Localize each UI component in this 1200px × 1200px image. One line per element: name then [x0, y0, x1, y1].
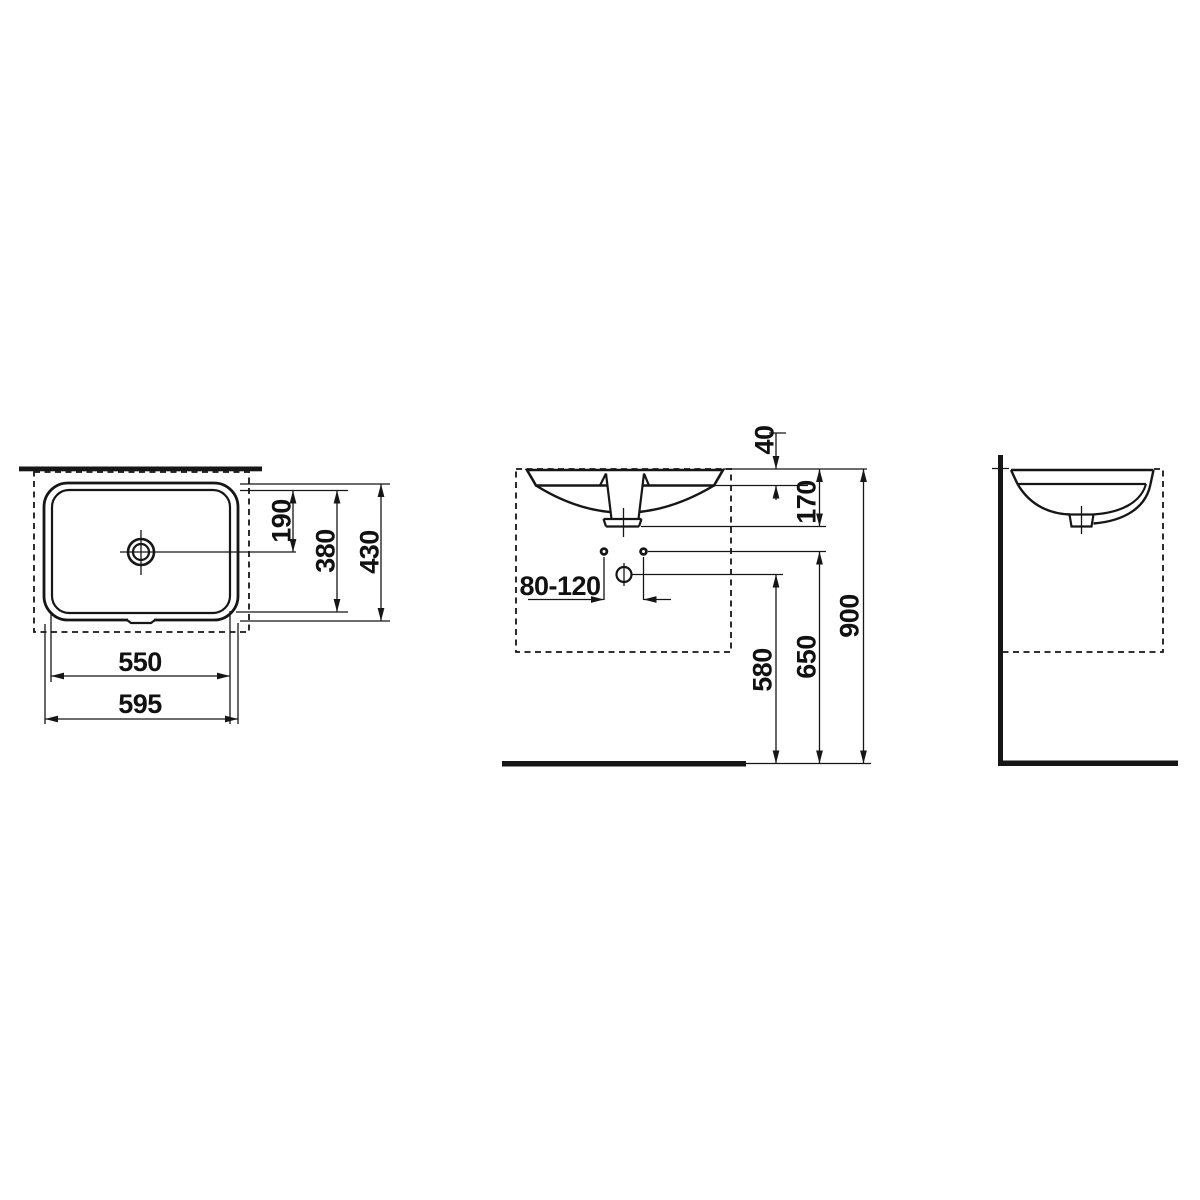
front-tap-hole-right [639, 547, 648, 556]
front-dim-650: 650 [792, 552, 822, 764]
plan-dim-595: 595 [45, 689, 238, 719]
technical-drawing: 190 380 430 550 595 [0, 0, 1200, 1200]
front-dim-40: 40 [750, 425, 780, 500]
plan-dim-430-label: 430 [355, 530, 385, 574]
plan-dim-550-label: 550 [118, 647, 162, 677]
plan-dim-380-label: 380 [311, 529, 341, 573]
front-dim-80-120-label: 80-120 [519, 571, 600, 601]
front-dim-580-label: 580 [748, 648, 778, 692]
front-dim-170: 170 [792, 469, 822, 527]
front-dim-900: 900 [835, 469, 865, 764]
front-dim-650-label: 650 [792, 635, 822, 679]
front-dim-80-120: 80-120 [519, 571, 671, 601]
front-waste-outlet [617, 563, 632, 586]
side-wall-line [998, 455, 1003, 766]
plan-dim-430: 430 [355, 484, 385, 621]
drawing-canvas: 190 380 430 550 595 [0, 0, 1200, 1200]
front-dim-580: 580 [748, 575, 778, 764]
front-dim-40-label: 40 [750, 425, 780, 454]
plan-dim-595-label: 595 [118, 689, 162, 719]
front-floor-line [502, 761, 746, 767]
front-view: 80-120 40 170 900 650 580 [502, 425, 871, 766]
plan-dim-550: 550 [51, 647, 230, 677]
plan-view: 190 380 430 550 595 [19, 467, 390, 725]
side-floor-line [998, 761, 1178, 767]
side-basin-profile [1011, 470, 1154, 534]
plan-dim-190: 190 [267, 491, 297, 553]
front-dim-900-label: 900 [835, 594, 865, 638]
side-view [992, 455, 1178, 766]
front-tap-hole-left [600, 547, 609, 556]
plan-dim-190-label: 190 [267, 499, 297, 543]
plan-dim-380: 380 [311, 491, 341, 613]
plan-wall-line [19, 467, 262, 472]
front-dim-170-label: 170 [792, 480, 822, 524]
